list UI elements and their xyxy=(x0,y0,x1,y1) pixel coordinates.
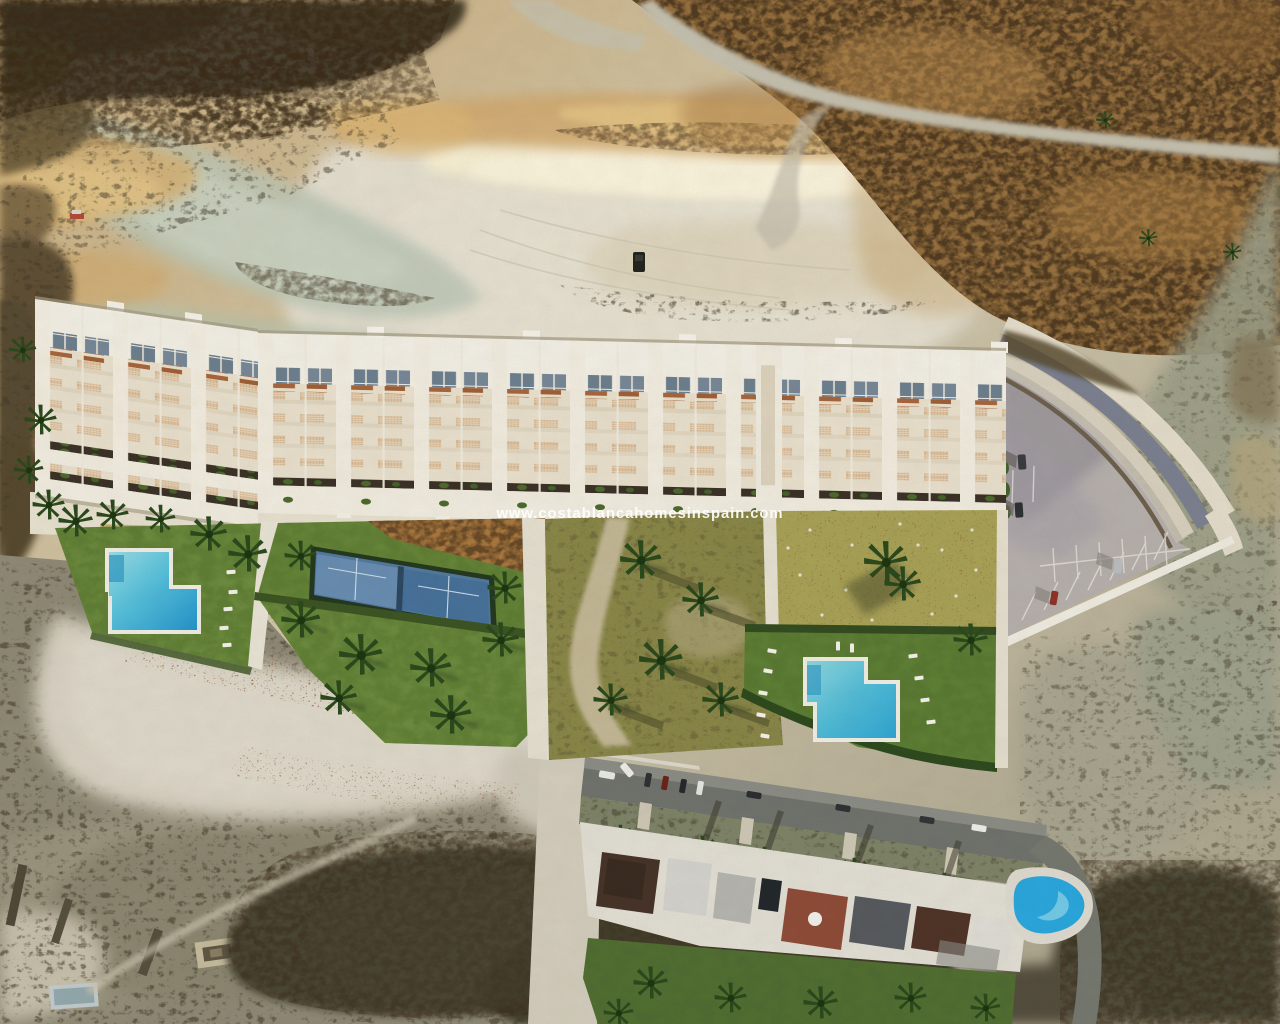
svg-text:www.costablancahomesinspain.co: www.costablancahomesinspain.com xyxy=(495,506,783,522)
